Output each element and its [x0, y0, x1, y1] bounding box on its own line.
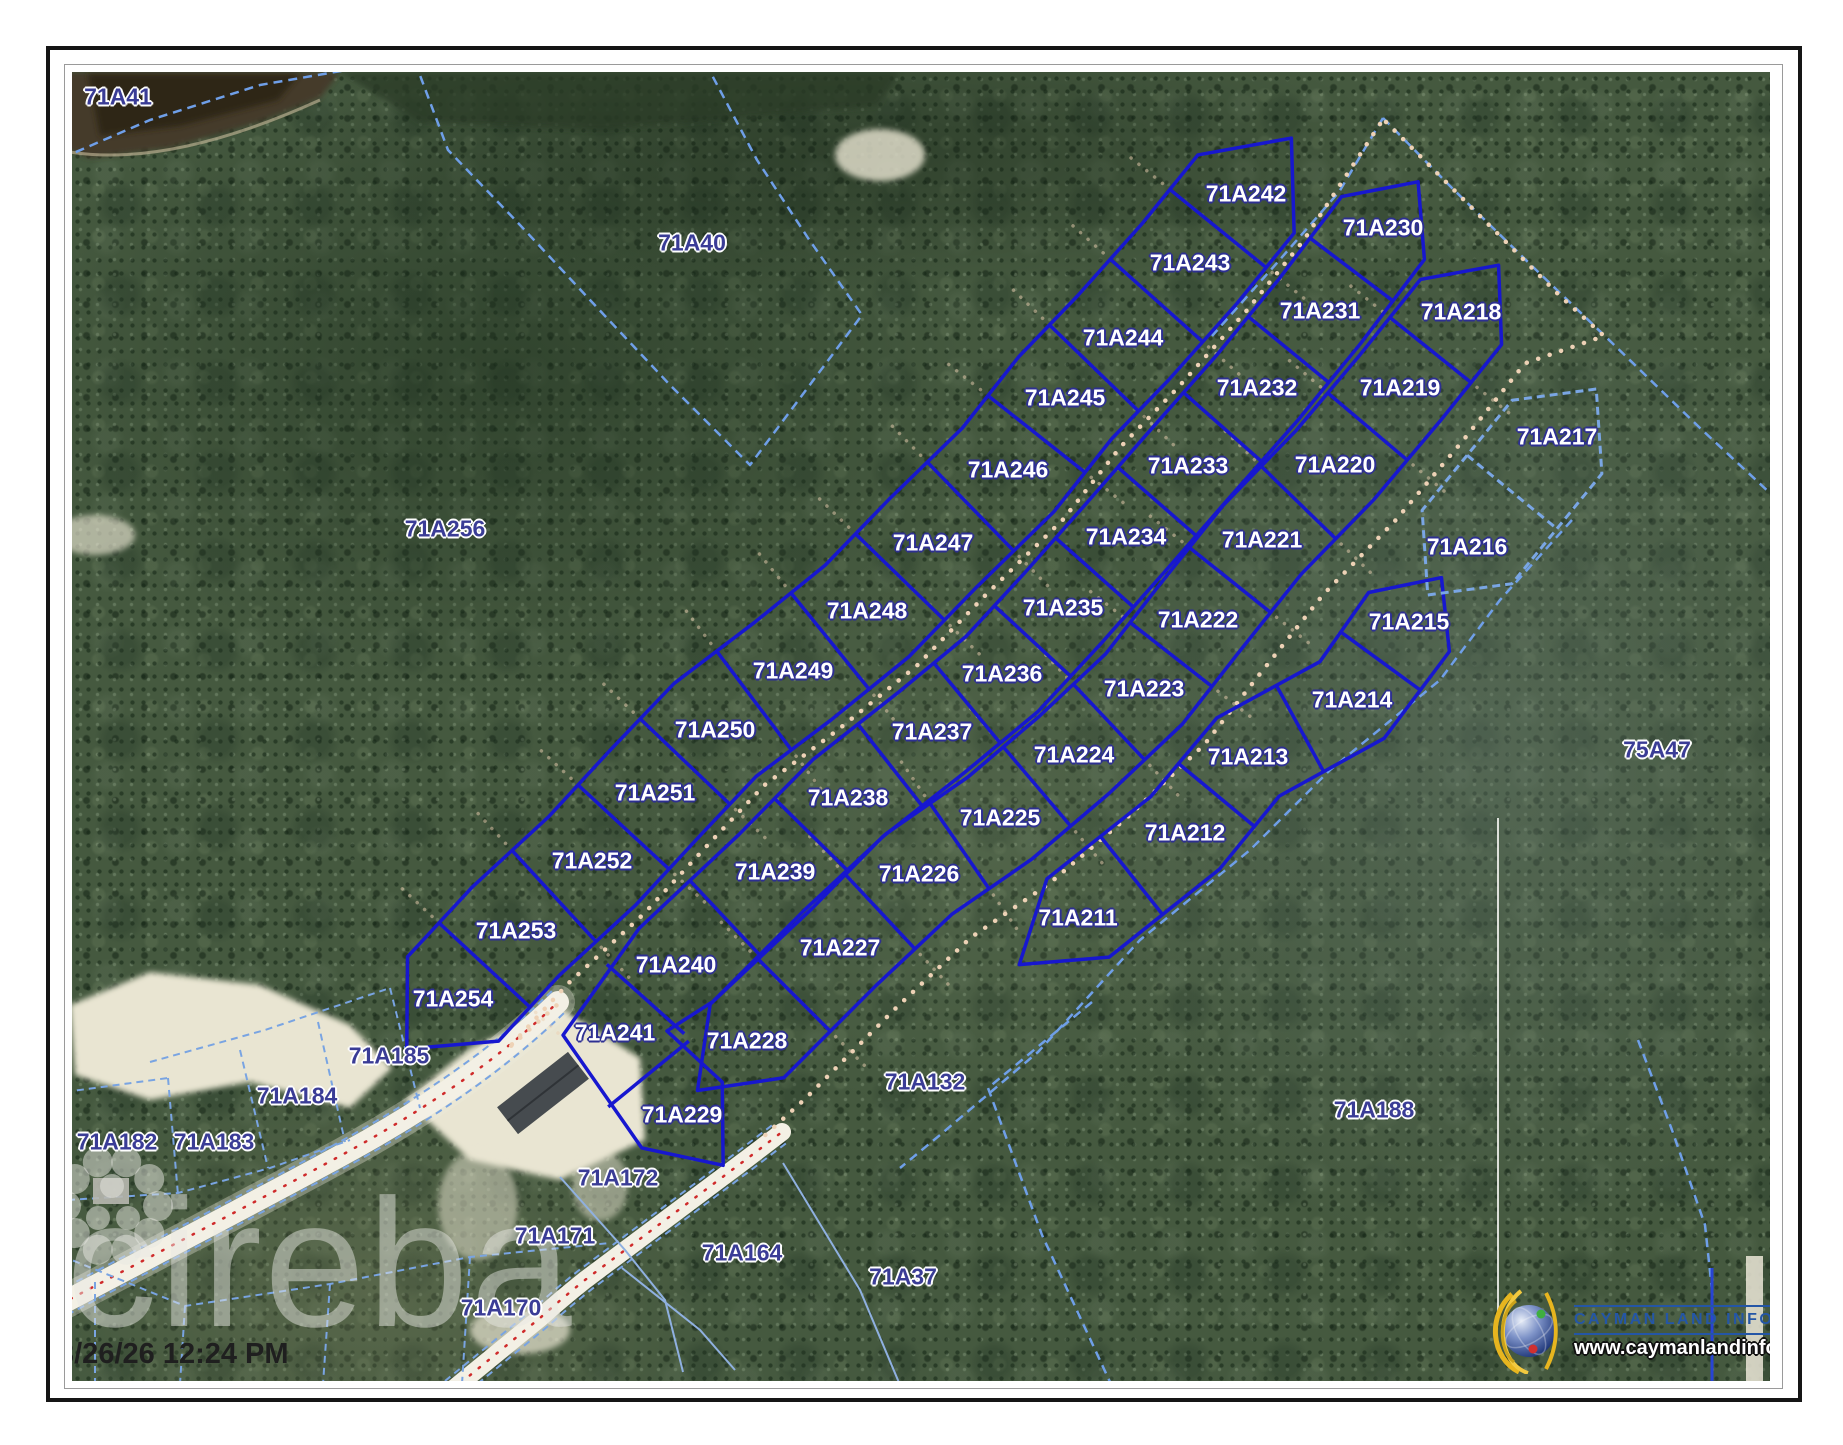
parcel-label-71A220: 71A220	[1295, 452, 1376, 479]
page: { "map": { "watermark_text": "cireba", "…	[0, 0, 1843, 1445]
parcel-label-71A221: 71A221	[1222, 527, 1303, 554]
parcel-label-71A240: 71A240	[636, 952, 717, 979]
parcel-label-71A228: 71A228	[707, 1028, 788, 1055]
parcel-label-71A253: 71A253	[476, 918, 557, 945]
parcel-label-71A238: 71A238	[808, 785, 889, 812]
west-track-dots	[507, 124, 1380, 1049]
parcel-label-71A241: 71A241	[575, 1020, 656, 1047]
subdivision-lot-boundaries	[407, 138, 1602, 1165]
parcel-label-71A37: 71A37	[869, 1264, 937, 1291]
parcel-label-71A225: 71A225	[960, 805, 1041, 832]
flower-petal	[72, 1191, 81, 1221]
parcel-label-71A256: 71A256	[405, 516, 486, 543]
globe-icon	[1488, 1288, 1566, 1374]
flower-petal	[134, 1164, 164, 1194]
parcel-label-71A164: 71A164	[702, 1240, 783, 1267]
parcel-label-71A214: 71A214	[1312, 687, 1393, 714]
flower-petal	[100, 1174, 124, 1198]
parcel-label-71A239: 71A239	[735, 859, 816, 886]
parcel-label-71A215: 71A215	[1369, 609, 1450, 636]
parcel-label-71A211: 71A211	[1038, 905, 1117, 932]
parcel-label-71A40: 71A40	[658, 230, 726, 257]
parcel-label-71A243: 71A243	[1150, 250, 1231, 277]
parcel-label-71A188: 71A188	[1334, 1097, 1415, 1124]
aerial-map: cireba 71A4171A4071A25675A4771A18571A184…	[72, 72, 1770, 1381]
logo-url: www.caymanlandinfo.ky	[1574, 1337, 1770, 1360]
flower-petal	[111, 1235, 141, 1265]
parcel-label-71A232: 71A232	[1217, 375, 1298, 402]
cayman-land-info-logo: CAYMAN LAND INFO www.caymanlandinfo.ky	[1488, 1288, 1770, 1374]
parcel-label-71A237: 71A237	[892, 719, 973, 746]
lot-strip-unhighlighted	[1422, 389, 1602, 595]
parcel-label-71A172: 71A172	[578, 1165, 659, 1192]
parcel-label-71A219: 71A219	[1360, 375, 1441, 402]
flower-petal	[86, 1206, 110, 1230]
parcel-label-71A170: 71A170	[461, 1295, 542, 1322]
parcel-label-71A242: 71A242	[1206, 181, 1287, 208]
parcel-label-71A183: 71A183	[174, 1129, 255, 1156]
parcel-label-71A222: 71A222	[1158, 607, 1239, 634]
parcel-label-71A229: 71A229	[642, 1102, 723, 1129]
parcel-label-71A212: 71A212	[1145, 820, 1226, 847]
logo-title: CAYMAN LAND INFO	[1574, 1309, 1770, 1331]
flower-petal	[116, 1206, 140, 1230]
parcel-label-71A41: 71A41	[84, 84, 152, 111]
parcel-label-71A244: 71A244	[1083, 325, 1164, 352]
parcel-label-71A249: 71A249	[753, 658, 834, 685]
parcel-label-71A184: 71A184	[257, 1083, 338, 1110]
parcel-label-71A218: 71A218	[1421, 299, 1502, 326]
logo-rule-bottom	[1574, 1333, 1770, 1335]
parcel-label-71A231: 71A231	[1280, 298, 1361, 325]
parcel-label-71A250: 71A250	[675, 717, 756, 744]
parcel-label-71A226: 71A226	[879, 861, 960, 888]
parcel-label-71A251: 71A251	[615, 780, 696, 807]
parcel-label-71A247: 71A247	[893, 530, 974, 557]
parcel-label-71A182: 71A182	[77, 1129, 158, 1156]
parcel-label-71A234: 71A234	[1086, 524, 1167, 551]
parcel-label-71A213: 71A213	[1208, 744, 1289, 771]
parcel-label-71A216: 71A216	[1427, 534, 1508, 561]
parcel-label-71A252: 71A252	[552, 848, 633, 875]
parcel-label-71A132: 71A132	[885, 1069, 966, 1096]
parcel-label-71A246: 71A246	[968, 457, 1049, 484]
parcel-label-71A230: 71A230	[1343, 215, 1424, 242]
parcel-label-71A245: 71A245	[1025, 385, 1106, 412]
parcel-label-71A223: 71A223	[1104, 676, 1185, 703]
flower-petal	[143, 1191, 173, 1221]
sand-patches	[72, 129, 925, 1354]
parcel-label-71A233: 71A233	[1148, 453, 1229, 480]
parcel-label-71A224: 71A224	[1034, 742, 1115, 769]
timestamp: 3/26/26 12:24 PM	[72, 1338, 289, 1371]
parcel-label-71A185: 71A185	[349, 1043, 430, 1070]
pond	[72, 72, 900, 158]
parcel-label-71A171: 71A171	[515, 1223, 596, 1250]
parcel-label-75A47: 75A47	[1623, 737, 1691, 764]
logo-rule-top	[1574, 1305, 1770, 1307]
parcel-label-71A248: 71A248	[827, 598, 908, 625]
parcel-label-71A254: 71A254	[413, 986, 494, 1013]
parcel-label-71A236: 71A236	[962, 661, 1043, 688]
parcel-label-71A235: 71A235	[1023, 595, 1104, 622]
parcel-label-71A217: 71A217	[1517, 424, 1598, 451]
parcel-label-71A227: 71A227	[800, 935, 881, 962]
